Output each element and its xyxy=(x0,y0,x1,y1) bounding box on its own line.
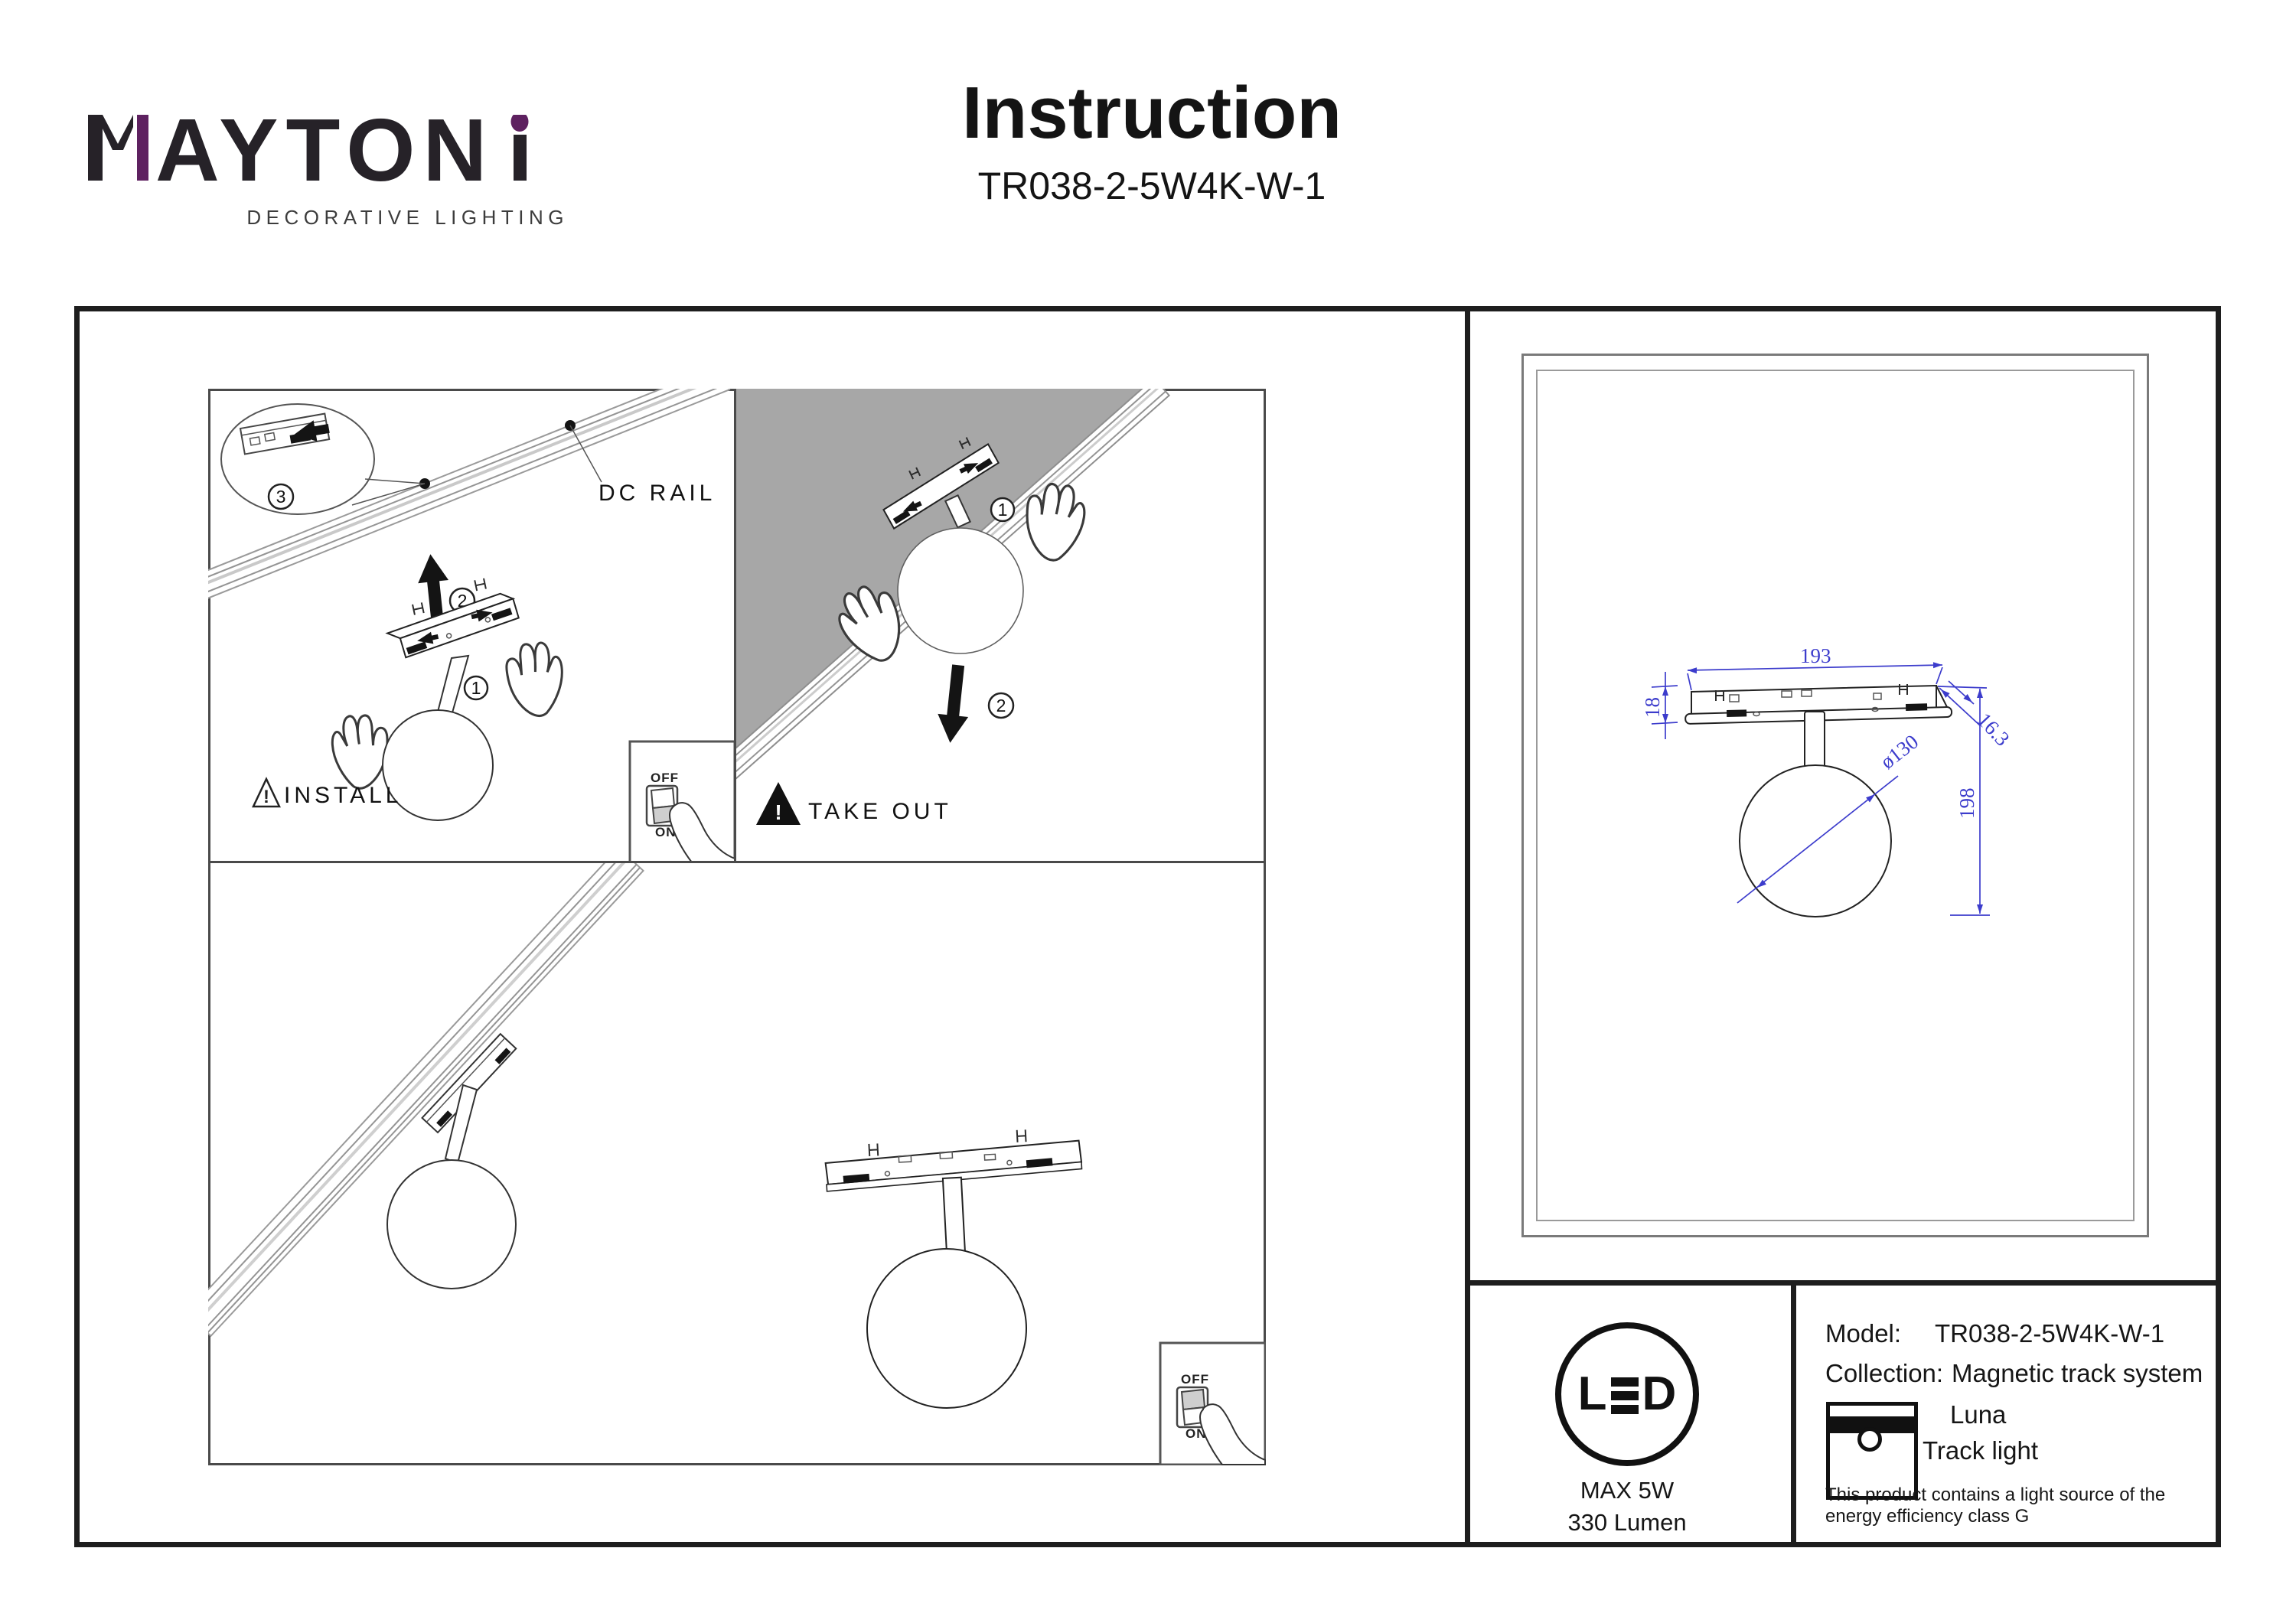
track-adapter-side-view xyxy=(1685,684,1952,917)
switch-rocker-top xyxy=(1182,1390,1205,1410)
dimension-drawing: 193 18 16.3 ø130 xyxy=(1630,643,2120,1133)
logo-m-accent-bar xyxy=(137,115,148,181)
svg-text:2: 2 xyxy=(996,696,1006,715)
brand-logo: AYTON DECORATIVE LIGHTING xyxy=(88,115,569,230)
step-2-badge: 2 xyxy=(989,693,1013,718)
detached-lamp xyxy=(824,1127,1087,1408)
model-label: Model: xyxy=(1825,1319,1901,1348)
page-title: Instruction xyxy=(804,77,1500,150)
cell-divider-horizontal xyxy=(208,861,1266,863)
logo-letters-ayton: AYTON xyxy=(155,115,494,185)
led-letter-e-bars xyxy=(1611,1377,1639,1414)
logo-letter-m-shape xyxy=(88,115,133,181)
take-out-warning: ! xyxy=(756,782,801,825)
power-off-inset: OFF ON xyxy=(630,741,735,862)
svg-text:18: 18 xyxy=(1641,697,1664,718)
move-down-arrow-icon xyxy=(935,663,974,745)
energy-note-line1: This product contains a light source of … xyxy=(1825,1484,2165,1506)
power-on-inset: OFF ON xyxy=(1160,1343,1265,1465)
svg-text:3: 3 xyxy=(276,487,286,507)
svg-text:ø130: ø130 xyxy=(1876,730,1923,774)
lamp-globe xyxy=(867,1249,1026,1408)
product-type: Track light xyxy=(1923,1436,2038,1465)
energy-note-line2: energy efficiency class G xyxy=(1825,1506,2029,1527)
led-badge: L D xyxy=(1555,1322,1699,1466)
install-diagram: 3 DC RAIL 2 1 xyxy=(208,389,735,863)
spec-panel-top-border xyxy=(1465,1280,2221,1286)
dim-track-height: 18 xyxy=(1641,672,1678,739)
step-1-badge: 1 xyxy=(465,676,488,699)
install-caption: INSTALL xyxy=(284,783,403,808)
max-power: MAX 5W xyxy=(1543,1477,1711,1504)
stem-side-view xyxy=(1805,712,1825,768)
model-value: TR038-2-5W4K-W-1 xyxy=(1935,1319,2164,1348)
take-out-diagram: 1 2 ! TAKE OUT xyxy=(735,389,1266,863)
dim-width: 193 xyxy=(1688,644,1942,690)
track-light-adapter xyxy=(380,573,522,660)
take-out-caption: TAKE OUT xyxy=(808,799,952,824)
step-1-badge: 1 xyxy=(991,498,1014,521)
collection-label: Collection: xyxy=(1825,1359,1943,1388)
header-title-block: Instruction TR038-2-5W4K-W-1 xyxy=(804,77,1500,205)
page-model-code: TR038-2-5W4K-W-1 xyxy=(804,167,1500,205)
instruction-sheet: AYTON DECORATIVE LIGHTING Instruction TR… xyxy=(0,0,2296,1623)
collection-value: Magnetic track system xyxy=(1952,1359,2203,1388)
svg-text:198: 198 xyxy=(1955,788,1978,820)
panel-divider xyxy=(1465,306,1470,1547)
led-letter-l: L xyxy=(1578,1370,1607,1418)
svg-text:193: 193 xyxy=(1800,644,1831,667)
cell-divider-vertical xyxy=(734,389,736,863)
svg-text:1: 1 xyxy=(998,500,1008,520)
switch-off-label: OFF xyxy=(1181,1372,1209,1387)
logo-letter-i-stem xyxy=(514,135,527,181)
led-letter-d: D xyxy=(1642,1370,1677,1418)
brand-logo-wordmark: AYTON xyxy=(88,115,569,185)
svg-text:!: ! xyxy=(775,800,781,824)
collection-name: Luna xyxy=(1950,1400,2006,1429)
luminous-flux: 330 Lumen xyxy=(1543,1509,1711,1537)
spec-panel-divider xyxy=(1791,1280,1796,1547)
track-knob xyxy=(1857,1427,1882,1452)
svg-text:16.3: 16.3 xyxy=(1973,709,2014,751)
brand-tagline: DECORATIVE LIGHTING xyxy=(88,206,569,230)
mounted-result-diagram: OFF ON xyxy=(208,863,1266,1465)
step-3-badge: 3 xyxy=(269,484,293,509)
right-hand-illustration xyxy=(499,637,567,719)
dc-rail-label: DC RAIL xyxy=(598,481,716,506)
svg-text:1: 1 xyxy=(471,678,481,698)
logo-i-dot xyxy=(511,115,529,132)
lamp-globe xyxy=(898,528,1023,653)
lamp-globe xyxy=(387,1160,516,1289)
switch-rocker-top xyxy=(651,788,674,808)
switch-off-label: OFF xyxy=(651,771,679,785)
install-warning: ! xyxy=(253,779,279,807)
svg-text:!: ! xyxy=(263,787,269,807)
